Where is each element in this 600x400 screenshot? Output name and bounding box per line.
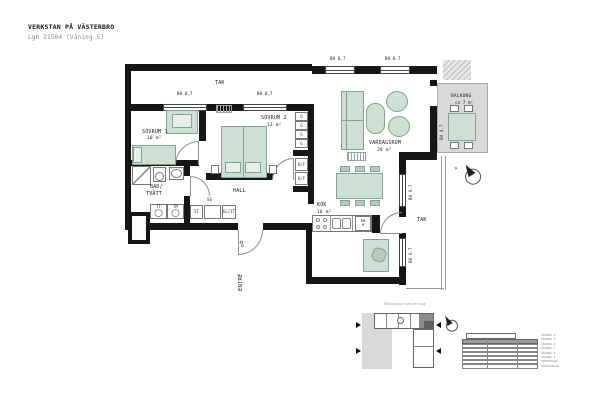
tv-bench (347, 152, 366, 161)
page-title: VERKSTAN PÅ VÄSTERBRO (28, 24, 114, 32)
nightstand (211, 165, 219, 174)
window (243, 104, 287, 111)
room-label-bad1: BAD/ (150, 184, 163, 190)
section-arrow-icon (356, 348, 361, 354)
vent-grille (216, 105, 232, 113)
balcony-chair (464, 105, 473, 112)
wall (184, 166, 190, 176)
washer: TM (167, 204, 184, 219)
room-label-bad2: TVÄTT (146, 191, 162, 197)
wall (199, 111, 206, 141)
room-area-vardagsrum: 20 m² (377, 148, 392, 153)
window-height-label: BH 0.7 (409, 247, 414, 263)
pillow (225, 162, 241, 173)
stove-burner (323, 218, 327, 222)
room-label-tak-west: TAK (215, 80, 225, 86)
window (325, 66, 355, 74)
sink-bowl (342, 218, 351, 229)
page-subtitle: Lgh 21504 (Våning 5) (28, 34, 104, 41)
floor-plan-sheet: VERKSTAN PÅ VÄSTERBRO Lgh 21504 (Våning … (0, 0, 600, 400)
door-leaf (380, 233, 402, 234)
stove-burner (316, 225, 320, 229)
dining-chair (340, 166, 350, 172)
dining-chair (355, 200, 365, 206)
north-compass-small-icon (439, 311, 463, 336)
balcony-chair (450, 142, 459, 149)
room-label-hall: HALL (233, 188, 246, 194)
section-arrow-icon (436, 348, 441, 354)
nightstand (269, 165, 277, 174)
fridge-freezer: K/F (295, 158, 308, 171)
wardrobe-cabinet: G (295, 121, 308, 130)
stove-burner (316, 218, 320, 222)
door-leaf (190, 176, 191, 196)
elevation-division-line (517, 339, 518, 369)
wardrobe-cabinet: G (295, 112, 308, 121)
sliding-wardrobe (204, 205, 221, 219)
wall (430, 106, 437, 156)
dining-table (336, 173, 383, 199)
pillow (245, 162, 261, 173)
window-height-label: BH 0.7 (330, 57, 346, 62)
armchair (388, 116, 410, 137)
north-compass-icon: N (456, 159, 487, 191)
room-label-balkong: BALKONG (451, 94, 471, 99)
overview-highlighted-unit-notch (424, 321, 433, 328)
wall (125, 64, 312, 71)
wall (308, 104, 314, 190)
wall (430, 80, 437, 86)
dining-chair (370, 166, 380, 172)
floor-label: GARAGEPLAN (541, 364, 581, 368)
dresser-top (172, 114, 192, 128)
door-swing (175, 141, 199, 165)
wall (372, 215, 380, 233)
electrical-cabinet: EL/IT (222, 205, 236, 219)
sofa-cushion-line (341, 120, 364, 121)
window (399, 238, 406, 267)
door-swing (380, 212, 402, 234)
overview-building-wing (413, 329, 434, 368)
elevation-floor-labels: VÅNING 6 VÅNING 5 VÅNING 4 VÅNING 3 VÅNI… (541, 333, 581, 368)
pillow (133, 147, 142, 163)
room-label-kok: KÖK (317, 202, 327, 208)
counter-divider (352, 216, 353, 231)
room-label-tak-east: TAK (417, 217, 427, 223)
elevation-floor-row (462, 364, 538, 369)
sliding-wardrobe-label: SG (207, 198, 212, 203)
room-area-balkong: ca 7 m² (455, 101, 473, 106)
counter-divider (330, 216, 331, 231)
section-arrow-icon (356, 322, 361, 328)
dining-chair (370, 200, 380, 206)
neighbor-balcony (443, 60, 471, 80)
wardrobe-cabinet: G (295, 130, 308, 139)
balcony-chair (450, 105, 459, 112)
door-leaf (293, 158, 294, 180)
window-height-label: BH 0.7 (409, 184, 414, 200)
door-leaf (198, 141, 199, 165)
room-label-sovrum1: SOVRUM 1 (142, 129, 168, 135)
sink-bowl (332, 218, 341, 229)
room-label-vardagsrum: VARDAGSRUM (369, 140, 401, 146)
dining-chair (340, 200, 350, 206)
wall (263, 223, 312, 230)
shower (132, 166, 151, 185)
room-label-sovrum2: SOVRUM 2 (261, 115, 287, 121)
wall (306, 277, 406, 284)
wardrobe-cabinet: G (295, 139, 308, 148)
room-area-kok: 16 m² (317, 210, 332, 215)
compass-north-letter: N (454, 166, 458, 171)
stove-burner (323, 225, 327, 229)
window-height-label: BH 0.7 (440, 124, 445, 140)
sink-basin (171, 169, 182, 178)
window-height-label: BH 0.7 (257, 92, 273, 97)
cleaning-closet: ST (190, 205, 203, 219)
dryer: TT (150, 204, 167, 219)
wall (308, 188, 314, 204)
terrace-edge (406, 288, 444, 289)
microwave-label: M (362, 224, 364, 228)
shaft (128, 212, 150, 244)
overview-stair-core (397, 317, 404, 324)
elevation-division-line (487, 339, 488, 369)
dining-chair (355, 166, 365, 172)
bed-split-line (243, 126, 244, 178)
window (399, 174, 406, 207)
armchair (386, 91, 408, 112)
window-height-label: BH 0.7 (385, 57, 401, 62)
toilet-bowl (155, 172, 164, 181)
terrace-railing (441, 156, 446, 290)
balcony-chair (464, 142, 473, 149)
window (380, 66, 410, 74)
wall (293, 150, 314, 156)
fridge-freezer: K/F (295, 172, 308, 185)
coffee-table (366, 103, 385, 134)
overview-caption: Våningsorientering (384, 302, 426, 306)
window-height-label: BH 0.7 (177, 92, 193, 97)
room-area-sovrum1: 10 m² (147, 136, 162, 141)
room-label-entre: ENTRÉ (238, 273, 245, 291)
dishwasher-micro: DM M (355, 216, 371, 231)
balcony-table (448, 113, 476, 141)
room-area-sovrum2: 13 m² (267, 123, 282, 128)
